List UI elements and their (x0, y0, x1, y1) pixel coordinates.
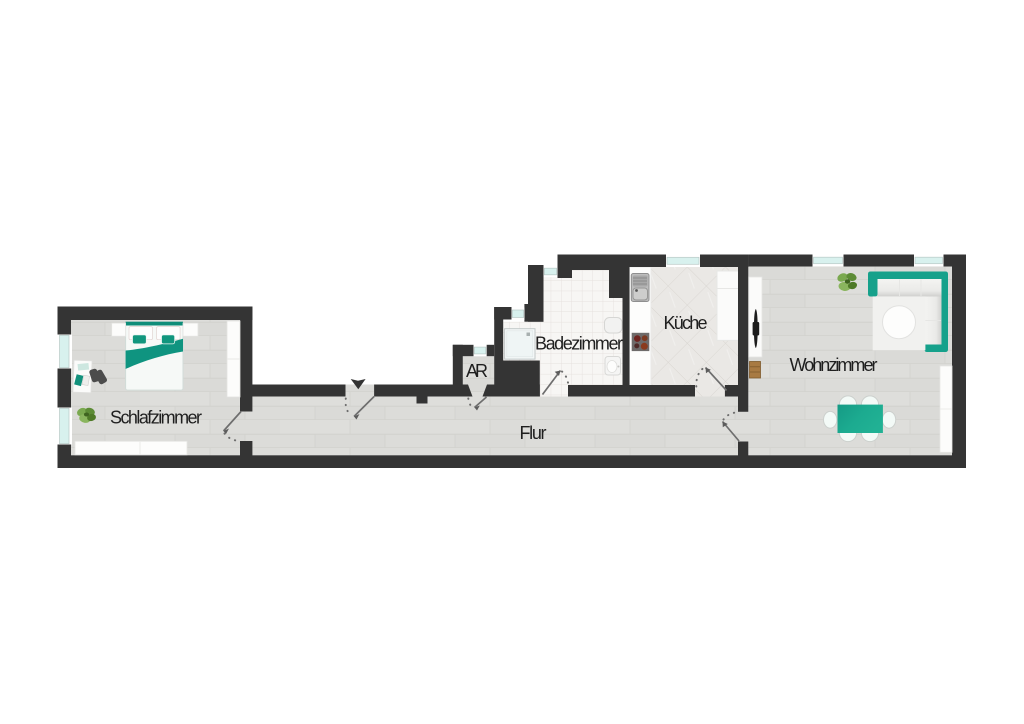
svg-text:Küche: Küche (664, 313, 708, 333)
svg-text:AR: AR (466, 361, 488, 381)
svg-text:Flur: Flur (520, 423, 547, 443)
svg-text:Badezimmer: Badezimmer (535, 334, 623, 354)
svg-text:Wohnzimmer: Wohnzimmer (790, 355, 878, 375)
svg-text:Schlafzimmer: Schlafzimmer (110, 408, 202, 428)
